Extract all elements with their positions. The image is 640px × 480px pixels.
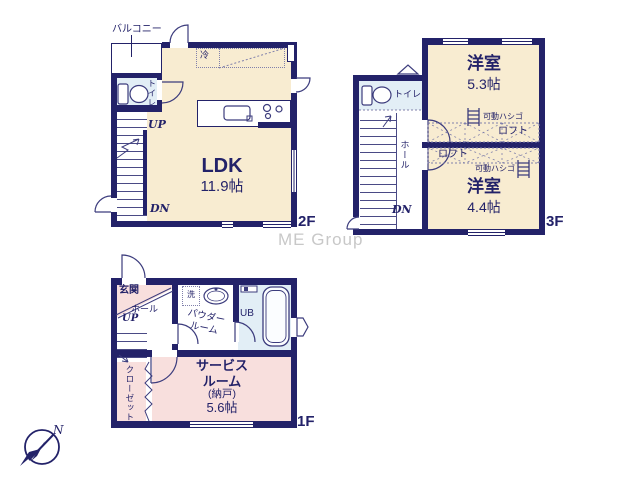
bath-door-gap — [233, 322, 239, 342]
fridge-zone — [196, 48, 285, 68]
wall-3f-right — [539, 38, 545, 235]
service-room-line2: ルーム — [162, 375, 282, 389]
compass: N — [17, 420, 69, 472]
window-3f-top-b — [502, 38, 532, 45]
up-label-2f: UP — [148, 119, 166, 131]
service-room-line4: 5.6帖 — [162, 401, 282, 415]
wall-3f-annex-left — [353, 75, 359, 235]
wall-2f-right — [291, 42, 297, 227]
balcony-area — [111, 43, 162, 74]
fridge-zone-divider — [219, 48, 220, 68]
wall-2f-balcony-bottom — [111, 73, 162, 78]
ldk-room-name: LDK — [182, 156, 262, 177]
balcony-door-gap — [170, 42, 188, 48]
closet-label: クローゼット — [125, 365, 134, 417]
wall-3f-annex-top — [353, 75, 422, 81]
wall-1f-middle — [111, 350, 297, 357]
window-1f-bottom — [190, 421, 253, 428]
down-label-3f: DN — [392, 204, 412, 216]
floor-label-3f: 3F — [546, 214, 564, 230]
stair-wall-2f — [143, 130, 147, 215]
service-room-line3: (納戸) — [162, 389, 282, 400]
left-door-gap-2f — [111, 198, 117, 212]
loft-label-upper: ロフト — [498, 127, 528, 138]
annex-door-gap — [353, 217, 359, 229]
toilet-label-3f: トイレ — [394, 90, 421, 99]
service-room-line1: サービス — [162, 359, 282, 373]
wall-3f-middle — [422, 142, 545, 148]
window-3f-bottom — [468, 229, 505, 236]
ladder-label-lower: 可動ハシゴ — [475, 165, 515, 173]
entrance-door-gap — [122, 278, 146, 285]
balcony-door-arc-icon — [170, 25, 188, 43]
hall-label-3f: ホール — [399, 140, 408, 176]
closet-folding-door-slot — [146, 362, 152, 421]
up-label-1f: UP — [122, 314, 138, 325]
bedroom-upper-size: 5.3帖 — [434, 77, 534, 92]
roof-vent-icon — [398, 65, 418, 74]
right-door-gap-2f — [291, 79, 297, 93]
compass-north-label: N — [52, 423, 64, 437]
floorplan-canvas: ME Group — [0, 0, 640, 480]
service-door-gap — [152, 350, 177, 357]
bedroom-lower-size: 4.4帖 — [434, 200, 534, 215]
window-slot-2f — [287, 44, 295, 62]
bath-window-gap — [291, 318, 297, 337]
balcony-label: バルコニー — [112, 25, 162, 36]
loft-label-lower: ロフト — [438, 150, 468, 161]
washer-label: 洗 — [187, 291, 195, 299]
floor-1f-plan: 玄関 ホール UP 洗 パウダー ルーム UB クローゼット サービス ルーム … — [95, 255, 329, 445]
fridge-label: 冷 — [200, 51, 209, 60]
toilet-label-2f: トイレ — [147, 79, 156, 107]
window-3f-top-a — [443, 38, 468, 45]
kitchen-counter-wall — [258, 122, 291, 128]
entrance-label: 玄関 — [119, 286, 139, 297]
bath-window-arrow-icon — [297, 318, 308, 336]
floor-3f-plan: トイレ ホール DN 洋室 5.3帖 可動ハシゴ ロフト ロフト 可動ハシゴ 洋… — [345, 25, 579, 241]
ladder-label-upper: 可動ハシゴ — [483, 113, 523, 121]
window-2f-bottom-a — [222, 221, 233, 228]
bedroom-lower-name: 洋室 — [434, 178, 534, 196]
floor-label-1f: 1F — [297, 414, 315, 430]
wall-3f-bottom — [353, 229, 545, 235]
toilet-door-gap-2f — [157, 80, 162, 100]
bath-label: UB — [240, 309, 254, 320]
balcony-label-pointer — [131, 35, 132, 57]
compass-icon: N — [17, 420, 69, 472]
down-label-2f: DN — [150, 203, 170, 215]
floor-label-2f: 2F — [298, 214, 316, 230]
entrance-door-arc-icon — [122, 255, 145, 278]
wall-powder-bath — [233, 285, 239, 322]
powder-door-gap — [172, 324, 178, 344]
upper-room-door-gap — [422, 120, 428, 142]
ldk-room-size: 11.9帖 — [182, 179, 262, 195]
lower-room-door-gap — [422, 148, 428, 170]
window-2f-bottom-b — [263, 221, 291, 228]
right-door-arc-icon — [296, 78, 310, 92]
floor-2f-plan: バルコニー 冷 トイレ UP DN LDK 11.9帖 2F — [95, 25, 325, 237]
left-door-arc-icon — [95, 196, 111, 212]
window-2f-right — [291, 150, 297, 192]
bedroom-upper-name: 洋室 — [434, 55, 534, 73]
